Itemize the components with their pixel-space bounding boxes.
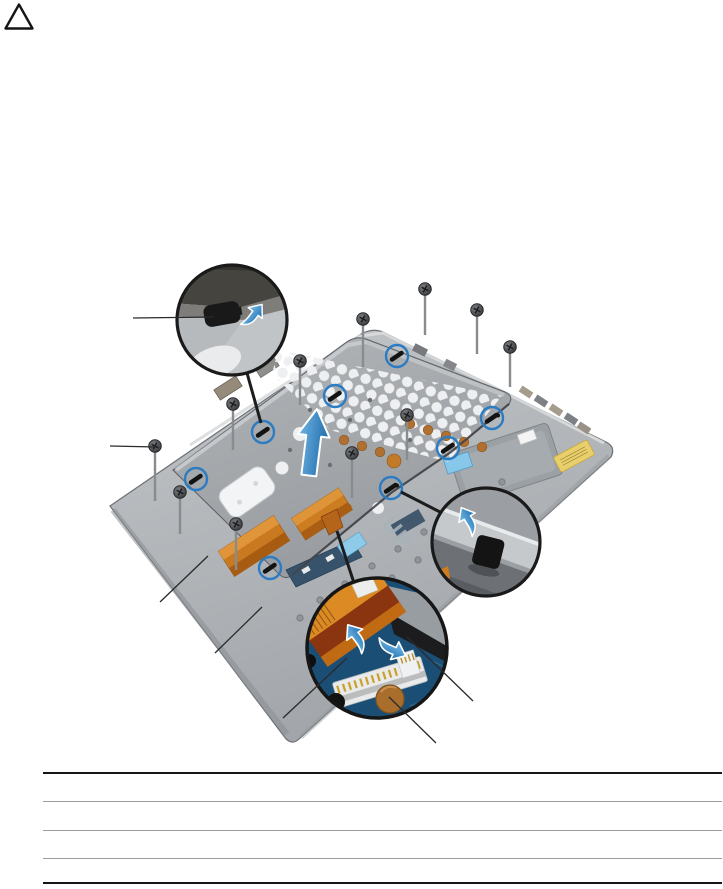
copper-pad: [376, 685, 404, 713]
table-row: [43, 774, 722, 802]
table-row: [43, 859, 722, 884]
table-row: [43, 831, 722, 859]
figure-illustration: UP: [0, 0, 723, 889]
table-row: [43, 802, 722, 831]
warning-triangle-icon: [6, 5, 33, 29]
screw-icon: [504, 341, 517, 387]
screw-icon: [471, 304, 484, 354]
screw-icon: [419, 283, 432, 335]
hinge-bracket: [214, 376, 242, 400]
manual-page: UP: [0, 0, 723, 889]
callout-table: [43, 772, 722, 884]
